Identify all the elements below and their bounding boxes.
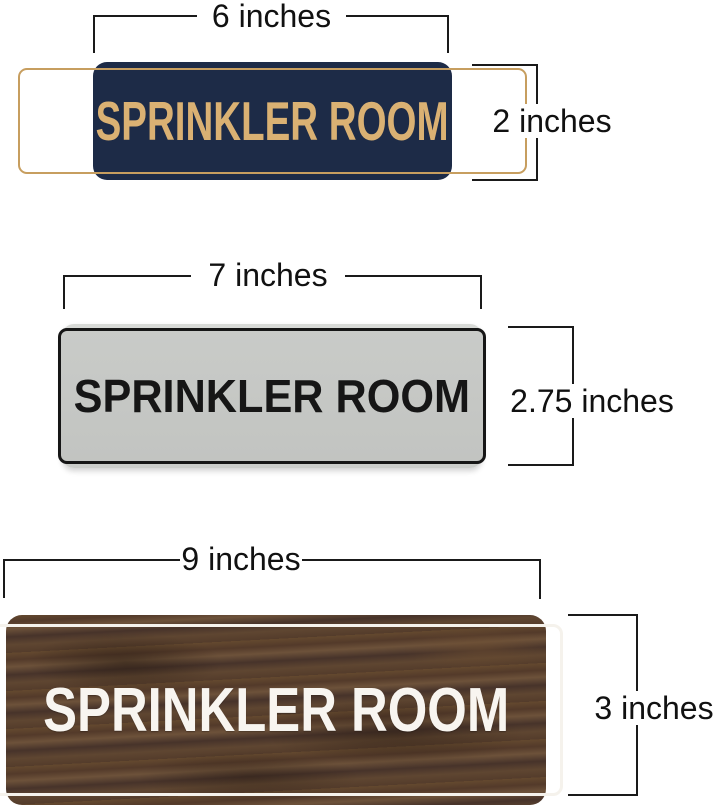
width-dimension-label-2: 7 inches (191, 258, 345, 292)
width-dimension-label-3: 9 inches (180, 542, 302, 576)
sign-walnut-wood: SPRINKLER ROOM (6, 615, 546, 805)
width-line-right-1 (346, 15, 449, 17)
width-tick-right-1 (447, 15, 449, 53)
height-tick-top-3 (568, 614, 638, 616)
height-tick-bottom-1 (472, 179, 538, 181)
height-dimension-label-1: 2 inches (470, 104, 634, 138)
width-tick-left-2 (63, 275, 65, 309)
width-dimension-label-1: 6 inches (197, 0, 346, 33)
height-tick-top-2 (508, 326, 574, 328)
width-line-right-3 (302, 559, 541, 561)
height-dimension-label-2: 2.75 inches (500, 384, 684, 418)
width-line-right-2 (345, 275, 482, 277)
width-tick-left-1 (93, 15, 95, 53)
sign-navy-text: SPRINKLER ROOM (96, 89, 449, 153)
sign-wood-inner-border: SPRINKLER ROOM (0, 624, 563, 796)
sign-silver-inner-border: SPRINKLER ROOM (58, 328, 486, 464)
sign-silver-text: SPRINKLER ROOM (74, 369, 470, 423)
sign-dimension-diagram: 6 inches SPRINKLER ROOM 2 inches 7 inche… (0, 0, 722, 805)
height-tick-top-1 (472, 64, 538, 66)
width-line-left-2 (63, 275, 191, 277)
height-tick-bottom-2 (508, 464, 574, 466)
height-tick-bottom-3 (568, 794, 638, 796)
width-tick-right-3 (539, 559, 541, 599)
height-dimension-label-3: 3 inches (578, 691, 722, 725)
width-line-left-1 (93, 15, 197, 17)
sign-wood-text: SPRINKLER ROOM (43, 675, 509, 746)
width-tick-right-2 (480, 275, 482, 309)
sign-navy-inner-border: SPRINKLER ROOM (18, 68, 526, 174)
width-line-left-3 (3, 559, 180, 561)
sign-navy-gold: SPRINKLER ROOM (93, 62, 452, 180)
sign-silver-black: SPRINKLER ROOM (62, 324, 482, 468)
width-tick-left-3 (3, 559, 5, 598)
